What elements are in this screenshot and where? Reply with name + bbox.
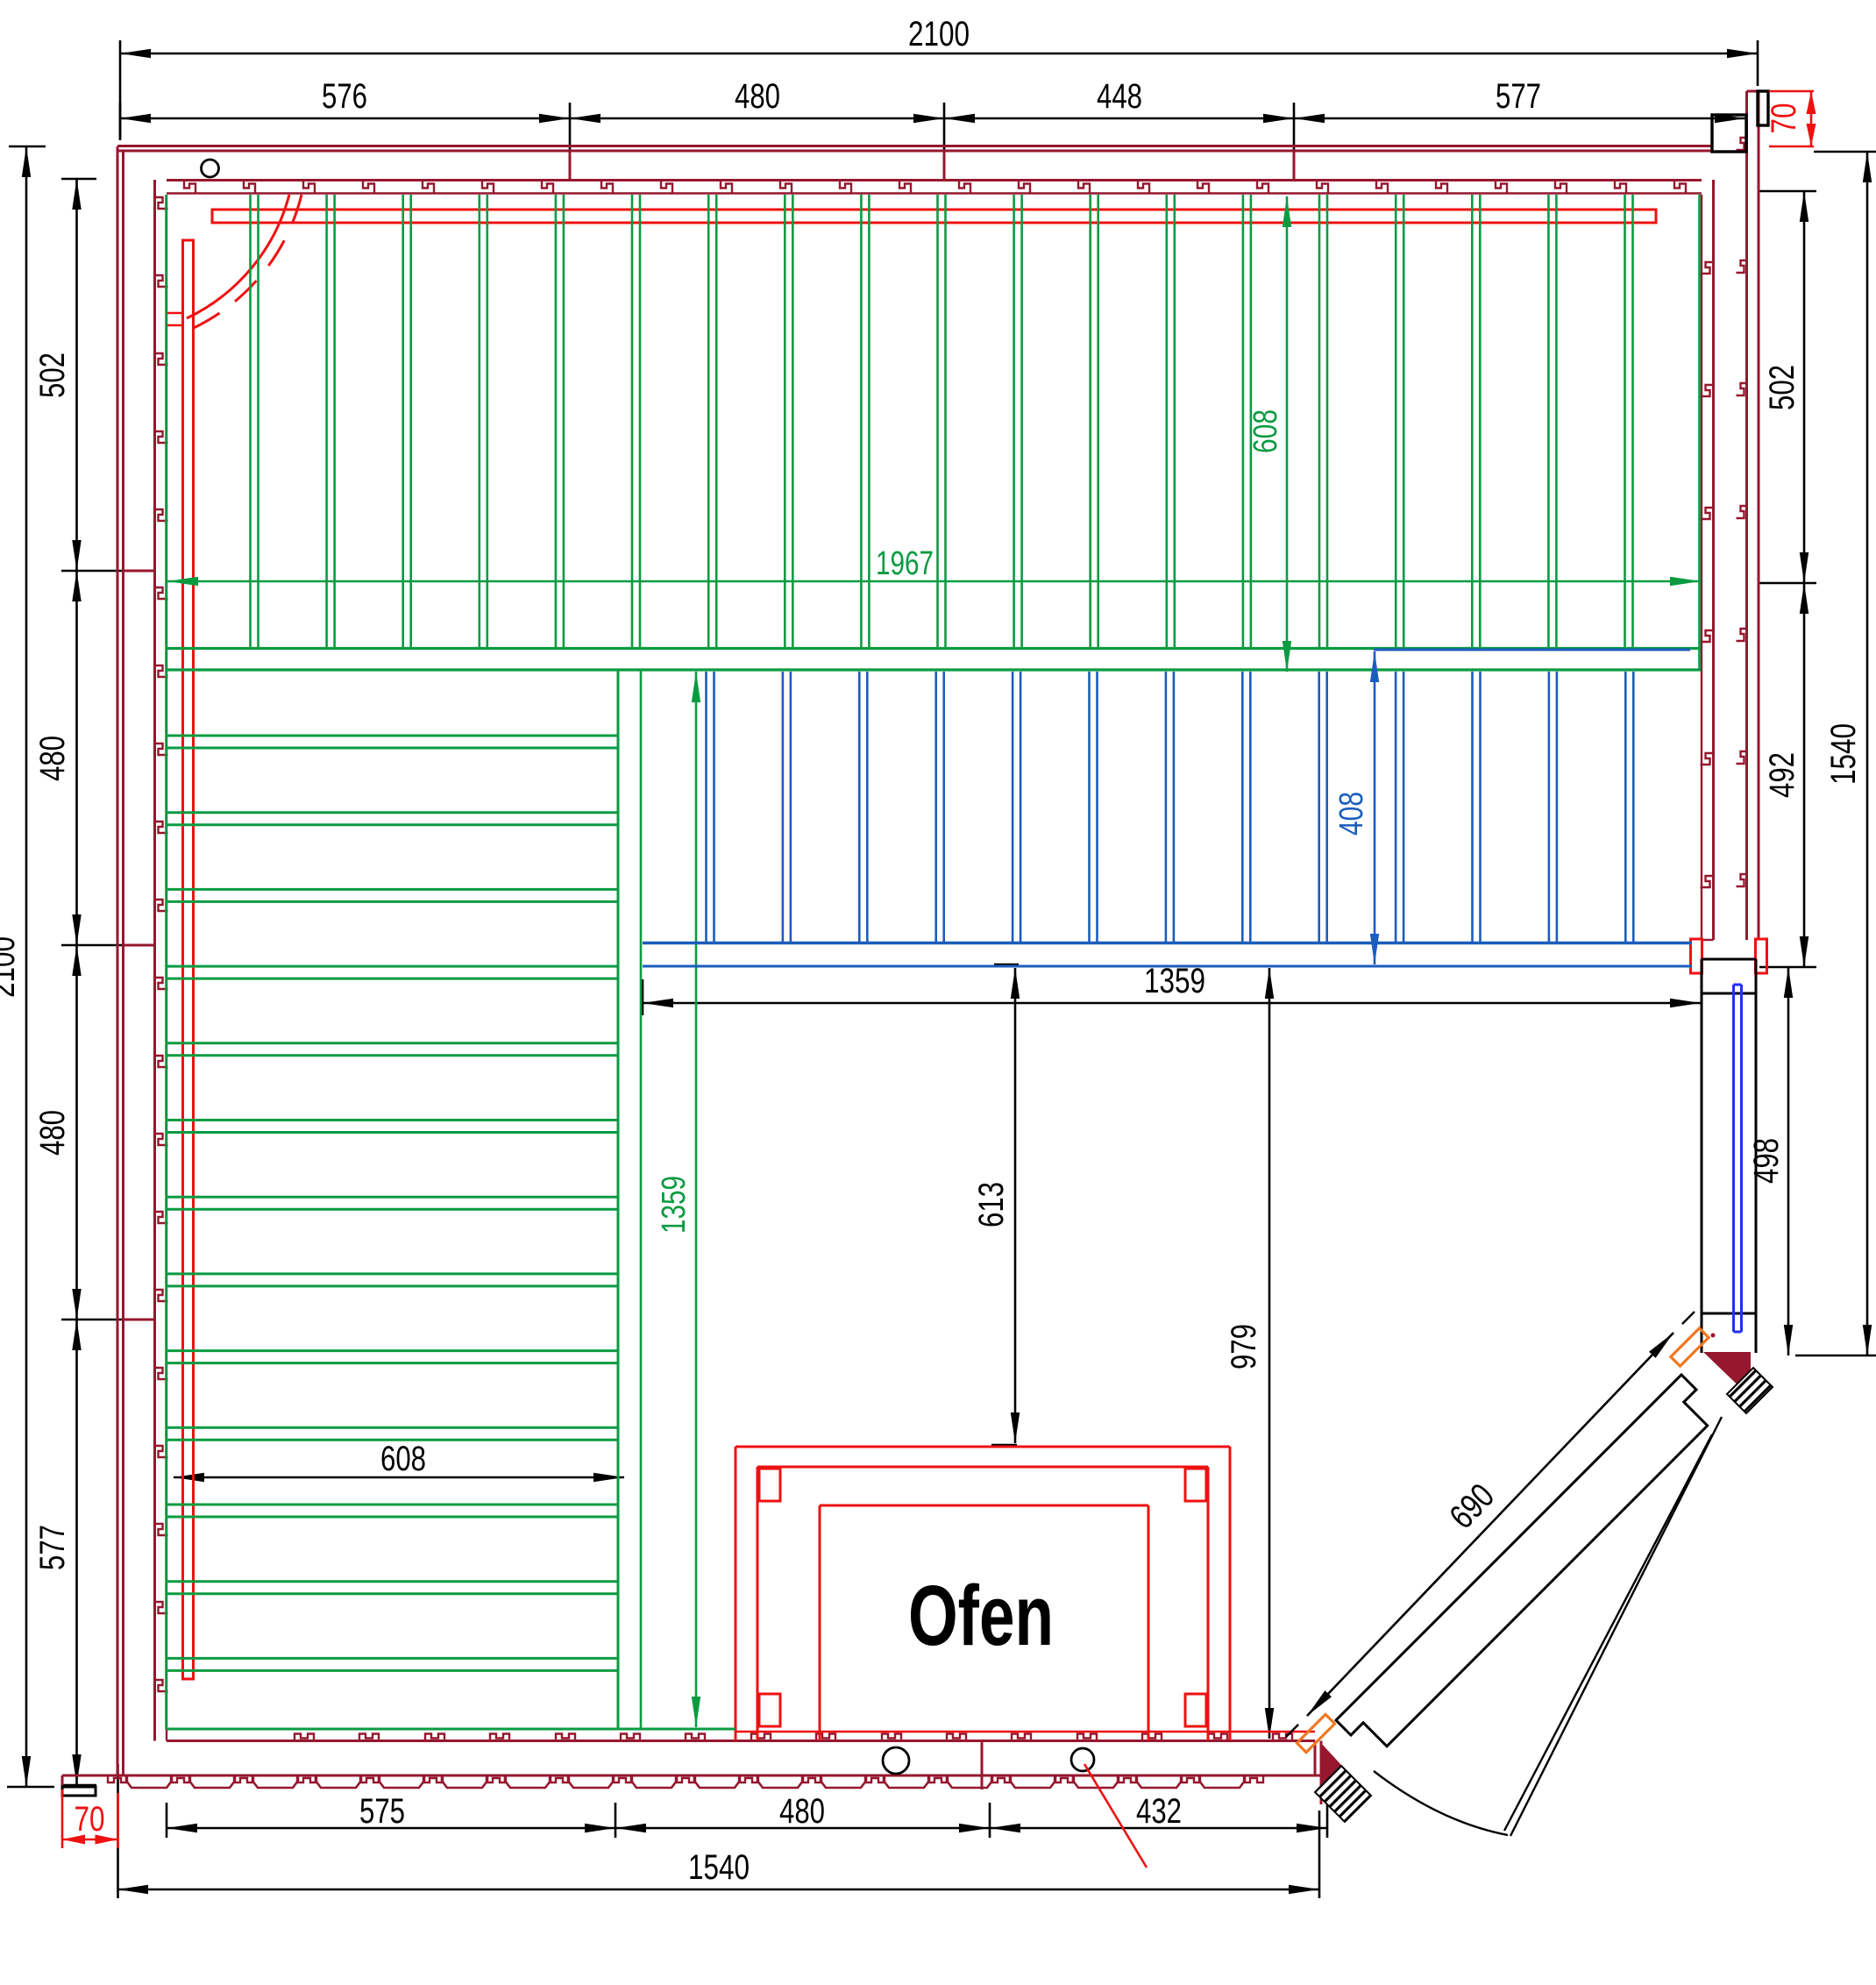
svg-text:577: 577 (1496, 77, 1541, 116)
svg-text:480: 480 (33, 1110, 72, 1156)
svg-text:2100: 2100 (0, 936, 22, 998)
svg-text:70: 70 (75, 1800, 105, 1839)
svg-text:1967: 1967 (876, 545, 934, 582)
svg-text:480: 480 (779, 1792, 825, 1831)
svg-text:1540: 1540 (1824, 723, 1863, 785)
svg-text:432: 432 (1136, 1792, 1182, 1831)
svg-text:576: 576 (322, 77, 367, 116)
svg-text:492: 492 (1763, 752, 1801, 798)
svg-text:1359: 1359 (1144, 962, 1205, 1000)
svg-text:577: 577 (33, 1525, 72, 1570)
svg-text:979: 979 (1225, 1324, 1263, 1370)
svg-text:2100: 2100 (908, 15, 970, 53)
svg-text:480: 480 (735, 77, 780, 116)
svg-text:690: 690 (1442, 1476, 1502, 1536)
svg-text:1359: 1359 (656, 1176, 693, 1234)
svg-text:575: 575 (359, 1792, 405, 1831)
svg-text:408: 408 (1333, 792, 1370, 836)
svg-text:502: 502 (1763, 365, 1801, 410)
svg-text:Ofen: Ofen (908, 1568, 1054, 1663)
svg-text:613: 613 (972, 1182, 1011, 1227)
svg-text:608: 608 (1247, 409, 1284, 453)
svg-text:448: 448 (1097, 77, 1142, 116)
svg-text:480: 480 (33, 736, 72, 781)
svg-text:608: 608 (380, 1440, 426, 1478)
svg-text:498: 498 (1747, 1138, 1786, 1184)
svg-text:1540: 1540 (688, 1848, 750, 1887)
svg-text:502: 502 (33, 352, 72, 398)
svg-text:70: 70 (1765, 103, 1803, 134)
